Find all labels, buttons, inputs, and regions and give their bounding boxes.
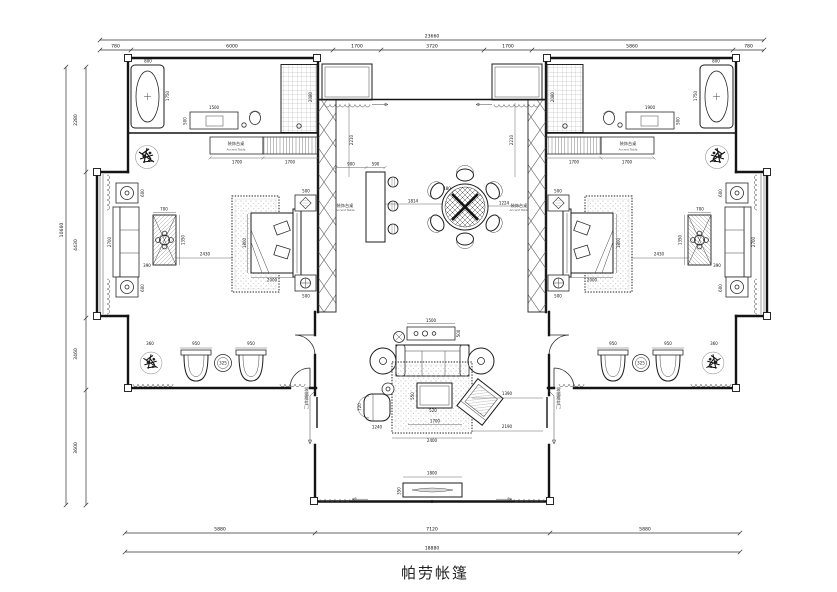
dim-label: 1500 (426, 318, 437, 323)
dim-label: 2280 (73, 114, 79, 126)
dim-label: 350 (397, 487, 402, 495)
accent-table-label-en: Accent Table (619, 148, 638, 152)
dim-label: 950 (609, 341, 617, 346)
dim-label: 900 (347, 162, 355, 167)
dim-label: 1700 (232, 160, 243, 165)
dim-label: 1700 (569, 160, 580, 165)
dim-label: 3720 (426, 44, 438, 50)
dim-label: 520 (429, 408, 437, 413)
accent-table-label-cn: 装饰台桌 (228, 140, 246, 147)
dim-label: 700 (696, 207, 704, 212)
dim-label: 1900 (645, 105, 656, 110)
dim-label: 720 (357, 403, 362, 411)
dim-label: 2700 (107, 236, 112, 247)
dim-label: 2190 (502, 424, 513, 429)
dim-label: 23660 (425, 34, 440, 40)
dim-label: 325 (219, 361, 227, 366)
dim-label: 1750 (693, 90, 698, 101)
dim-label: 5880 (214, 527, 226, 533)
dim-label: 1800 (616, 237, 621, 248)
dim-label: 600 (140, 284, 145, 292)
dim-label: 3600 (73, 442, 79, 454)
dim-label: 390 (713, 263, 721, 268)
dim-label: 950 (247, 341, 255, 346)
dim-label: 600 (718, 189, 723, 197)
dim-label: 950 (664, 341, 672, 346)
dim-label: 7120 (426, 527, 438, 533)
living-room (358, 324, 543, 498)
sliding-door-label: 玻璃推拉门 (304, 386, 309, 411)
dim-label: 1814 (408, 199, 419, 204)
dim-label: 390 (143, 263, 151, 268)
dim-label: 1800 (427, 471, 438, 476)
dim-label: 5880 (639, 527, 651, 533)
dim-label: 6000 (226, 44, 238, 50)
accent-table-label-cn: 装饰台桌 (620, 140, 638, 147)
dim-label: 800 (144, 59, 152, 64)
dim-label: 360 (146, 341, 154, 346)
dim-label: 1700 (622, 160, 633, 165)
floor-plan-drawing: 23660 780 6000 1700 3720 1700 5860 780 2… (0, 0, 837, 592)
dim-label: 780 (111, 44, 120, 50)
dim-label: 590 (372, 162, 380, 167)
dim-label: 500 (183, 117, 188, 125)
dim-label: 1700 (502, 44, 514, 50)
accent-table-label-en: Accent Table (510, 208, 529, 212)
dim-label: 2700 (751, 236, 756, 247)
dim-label: 1700 (285, 160, 296, 165)
dim-label: 2430 (654, 252, 665, 257)
dim-label: 360 (710, 341, 718, 346)
building-shell (94, 55, 771, 505)
dim-label: 780 (744, 44, 753, 50)
dim-label: 1240 (372, 425, 383, 430)
dim-label: 500 (456, 329, 461, 337)
dim-label: 1700 (430, 419, 441, 424)
dim-label: 325 (637, 361, 645, 366)
central-zone (335, 166, 544, 498)
dim-label: 5860 (626, 44, 638, 50)
dim-label: 1390 (502, 391, 513, 396)
dim-label: 1350 (181, 234, 186, 245)
dim-label: 600 (718, 284, 723, 292)
sliding-door-label: 玻璃推拉门 (556, 386, 561, 411)
dim-label: 550 (410, 392, 415, 400)
round-side-table (370, 348, 396, 374)
dim-label: 500 (676, 117, 681, 125)
dim-label: 1500 (209, 105, 220, 110)
dim-label: 800 (712, 59, 720, 64)
dim-label: 2210 (349, 134, 354, 145)
accent-table-label-en: Accent Table (336, 208, 355, 212)
dim-label: 500 (554, 294, 562, 299)
dim-label: 1350 (678, 234, 683, 245)
dim-label: 500 (554, 189, 562, 194)
drawing-title: 帕劳帐篷 (401, 564, 469, 582)
dim-label: 2000 (267, 278, 278, 283)
dim-label: 1800 (242, 237, 247, 248)
dim-label: 500 (302, 294, 310, 299)
accent-table-label-en: Accent Table (227, 148, 246, 152)
dim-label: 1224 (499, 201, 510, 206)
dim-label: 500 (302, 189, 310, 194)
dim-label: 2210 (509, 134, 514, 145)
dim-label: 700 (160, 207, 168, 212)
dim-label: 2080 (308, 91, 313, 102)
dining-table (425, 166, 505, 249)
dim-label: 600 (140, 189, 145, 197)
dim-label: 2400 (427, 438, 438, 443)
dim-label: 2080 (550, 91, 555, 102)
dim-label: 2430 (200, 252, 211, 257)
dim-label: 18880 (425, 546, 440, 552)
coffee-table (417, 383, 452, 408)
dim-label: 480 (443, 186, 451, 191)
dim-label: 2000 (587, 278, 598, 283)
dim-label: 1700 (351, 44, 363, 50)
bar-sideboard (366, 172, 385, 242)
dim-label: 1750 (165, 90, 170, 101)
dim-label: 10660 (59, 223, 65, 238)
chaise-chair (358, 394, 390, 421)
floor-plan-page: 23660 780 6000 1700 3720 1700 5860 780 2… (0, 0, 837, 592)
dim-label: 950 (192, 341, 200, 346)
dim-label: 4430 (73, 239, 79, 251)
dim-label: 3460 (73, 348, 79, 360)
